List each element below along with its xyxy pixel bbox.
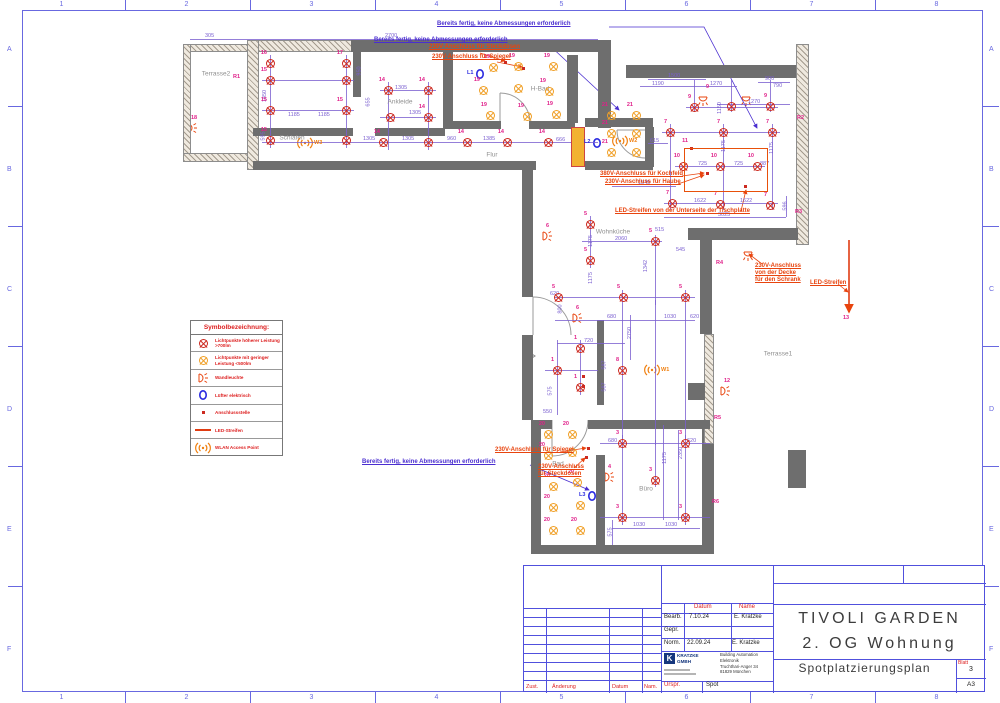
dim-label: 620 — [690, 314, 699, 320]
spot-number: 19 — [467, 77, 480, 83]
spot-light-high — [690, 103, 699, 112]
spot-light-high — [553, 366, 562, 375]
wall-segment — [183, 44, 255, 52]
spot-number: 7 — [756, 119, 769, 125]
wandleuchte-label: 6 — [546, 223, 549, 229]
title-block-line — [773, 583, 986, 584]
frame-tick — [625, 0, 626, 10]
title-block-line — [661, 638, 773, 639]
dim-label: 1030 — [664, 314, 676, 320]
frame-tick — [983, 106, 999, 107]
wall-segment — [588, 420, 602, 429]
spot-light-low — [486, 111, 495, 120]
grid-row-label: E — [7, 526, 12, 533]
dim-line — [262, 110, 354, 111]
wifi-label: W2 — [629, 138, 637, 144]
spot-number: 15 — [330, 97, 343, 103]
frame-tick — [8, 106, 22, 107]
wall-segment — [183, 44, 191, 162]
grid-col-label: 2 — [185, 694, 189, 701]
spot-number: 1 — [564, 374, 577, 380]
title-block-line — [524, 653, 661, 654]
grid-row-label: B — [989, 166, 994, 173]
spot-number: 14 — [412, 77, 425, 83]
spot-light-high — [424, 86, 433, 95]
spot-number: 1 — [541, 357, 554, 363]
annotation-line: 380V-Anschluss für Kochfeld — [600, 171, 683, 178]
luefter-icon — [191, 387, 215, 403]
company-address: Building Automation Elektronik Truchthar… — [720, 652, 758, 675]
spot-number: 3 — [606, 430, 619, 436]
dim-line — [600, 517, 710, 518]
spot-number: 3 — [639, 467, 652, 473]
footer-datum: Datum — [612, 684, 628, 690]
dim-label: 680 — [607, 314, 616, 320]
company-logo-icon: K — [664, 653, 675, 664]
dim-label: 575 — [608, 527, 614, 536]
title-block-line — [702, 681, 703, 693]
room-label: Flur — [486, 152, 497, 159]
spot-light-high — [424, 138, 433, 147]
grid-col-label: 8 — [935, 694, 939, 701]
annotation: 230V-Anschluss für Spiegel — [432, 54, 511, 61]
blatt-number: 3 — [956, 666, 986, 673]
dim-line — [555, 320, 695, 321]
annotation-line: 230V-Anschluss für Steckdosen — [429, 44, 520, 51]
row-label-gepr: Gepr. — [664, 627, 679, 633]
room-label: Wohnküche — [596, 229, 630, 236]
legend-row: WLAN Access Point — [191, 439, 282, 456]
spot-number: 8 — [606, 357, 619, 363]
logo-fine-print-line — [664, 669, 690, 671]
wall-segment — [522, 335, 533, 420]
dim-label: 1175 — [769, 142, 775, 154]
frame-tick — [125, 0, 126, 10]
room-label: Ankleide — [388, 99, 413, 106]
dim-line — [670, 124, 671, 210]
wandleuchte-icon — [699, 97, 708, 106]
spot-light-high — [586, 256, 595, 265]
frame-tick — [983, 586, 999, 587]
footer-nam: Nam. — [644, 684, 657, 690]
dim-label: 550 — [543, 409, 552, 415]
wall-segment — [531, 545, 714, 554]
spot-number: 21 — [595, 102, 608, 108]
spot-light-high — [666, 128, 675, 137]
dim-label: 596 — [783, 201, 789, 210]
wandleuchte-icon — [199, 373, 208, 382]
spot-number: 15 — [254, 67, 267, 73]
title-block-line — [773, 604, 986, 605]
frame-tick — [125, 692, 126, 703]
title-block-line — [609, 608, 610, 693]
dim-label: 587 — [602, 382, 608, 391]
spot-light-low — [489, 63, 498, 72]
urspr-label: Urspr. — [664, 682, 680, 688]
title-block-line — [524, 644, 661, 645]
spot-light-high — [618, 513, 627, 522]
legend-row: Anschlussstelle — [191, 405, 282, 422]
wlan-access-point-icon — [613, 136, 628, 146]
spot-number: 19 — [537, 53, 550, 59]
norm-datum: 22.09.24 — [687, 640, 710, 646]
spot-number: 5 — [574, 211, 587, 217]
wall-segment — [443, 121, 501, 129]
spot-light-high — [554, 293, 563, 302]
frame-tick — [750, 692, 751, 703]
dim-label: 1305 — [402, 136, 414, 142]
spot-light-high — [681, 293, 690, 302]
grid-col-label: 7 — [810, 1, 814, 8]
spot-light-low — [549, 482, 558, 491]
legend-row: Lichtpunkte höherer Leistung >700lm — [191, 335, 282, 352]
grid-row-label: B — [7, 166, 12, 173]
spot-light-high — [266, 106, 275, 115]
spot-light-low — [576, 501, 585, 510]
spot-light-high — [618, 366, 627, 375]
spot-light-high — [651, 476, 660, 485]
grid-row-label: F — [7, 646, 11, 653]
annotation: LED-Streifen — [810, 280, 846, 287]
dim-label: 1190 — [652, 81, 664, 87]
spot-light-high — [342, 136, 351, 145]
grid-col-label: 3 — [310, 1, 314, 8]
spot-number: 20 — [564, 517, 577, 523]
spot-number: 19 — [474, 102, 487, 108]
frame-tick — [8, 586, 22, 587]
dim-label: 2060 — [615, 236, 627, 242]
grid-col-label: 8 — [935, 1, 939, 8]
anschluss-number: 11 — [675, 138, 688, 144]
title-block-line — [524, 626, 661, 627]
spot-light-low — [549, 526, 558, 535]
grid-col-label: 1 — [60, 1, 64, 8]
luefter-icon — [589, 492, 595, 500]
spot-light-low — [545, 87, 554, 96]
spot-number: 20 — [537, 494, 550, 500]
wandleuchte-label: 4 — [608, 464, 611, 470]
grid-row-label: C — [7, 286, 12, 293]
legend-row: Lüfter elektrisch — [191, 387, 282, 404]
wifi-label: W3 — [314, 140, 322, 146]
wandleuchte-icon — [543, 232, 552, 241]
company-logo-sub: GMBH — [677, 659, 691, 664]
wall-segment — [253, 161, 536, 170]
dim-label: 1270 — [748, 99, 760, 105]
wifi-label: W1 — [661, 367, 669, 373]
dim-label: 1305 — [395, 85, 407, 91]
spot-number: 17 — [330, 50, 343, 56]
annotation-line: Bereits fertig, keine Abmessungen erford… — [362, 459, 495, 466]
project-title: TIVOLI GARDEN 2. OG Wohnung — [773, 606, 986, 656]
dim-label: 1185 — [318, 112, 330, 118]
grid-col-label: 4 — [435, 694, 439, 701]
dim-label: 1342 — [643, 260, 649, 272]
frame-tick — [500, 692, 501, 703]
dim-label: 1270 — [710, 81, 722, 87]
dim-label: 680 — [608, 438, 617, 444]
dim-label: 575 — [548, 386, 554, 395]
ref-label: 13 — [843, 315, 849, 321]
frame-tick — [625, 692, 626, 703]
annotation-line: 230V-Anschluss für Spiegel — [495, 447, 574, 454]
frame-tick — [500, 0, 501, 10]
grid-row-label: D — [989, 406, 994, 413]
dim-label: 545 — [676, 247, 685, 253]
room-label: Terrasse2 — [202, 71, 231, 78]
spot-number: 10 — [667, 153, 680, 159]
annotation: 230V-Anschluss für Haube — [605, 179, 681, 186]
spot-number: 3 — [606, 504, 619, 510]
dim-label: 1175 — [588, 235, 594, 247]
logo-fine-print-line — [664, 673, 696, 675]
spot-number: 14 — [372, 77, 385, 83]
ref-label: R1 — [233, 74, 240, 80]
annotation-line: für Steckdosen — [538, 471, 584, 478]
ref-label: R4 — [716, 260, 723, 266]
spot-light-high — [766, 102, 775, 111]
title-block-line — [524, 617, 661, 618]
dim-line — [622, 435, 623, 525]
spot-number: 5 — [574, 247, 587, 253]
dim-label: 1305 — [409, 110, 421, 116]
dim-label: 1622 — [694, 198, 706, 204]
wall-segment — [788, 450, 806, 488]
annotation-line: LED-Streifen — [810, 280, 846, 287]
spot-light-high — [576, 344, 585, 353]
spot-light-high — [384, 86, 393, 95]
footer-zust: Zust. — [526, 684, 538, 690]
frame-tick — [983, 226, 999, 227]
spot-light-high — [266, 136, 275, 145]
room-label: Terrasse1 — [764, 351, 793, 358]
anschluss-dot — [587, 447, 590, 450]
spot-number: 9 — [678, 94, 691, 100]
door-arc — [617, 130, 645, 158]
spot-number: 5 — [607, 284, 620, 290]
spot-light-high — [768, 128, 777, 137]
legend-label: Lichtpunkte höherer Leistung >700lm — [215, 338, 282, 348]
dim-line — [262, 80, 354, 81]
bearb-datum: 7.10.24 — [689, 614, 709, 620]
spot-number: 20 — [556, 421, 569, 427]
spot-number: 20 — [537, 517, 550, 523]
spot-light-high — [503, 138, 512, 147]
legend-label: Anschlussstelle — [215, 410, 282, 415]
row-label-norm: Norm. — [664, 640, 680, 646]
annotation-line: LED-Streifen von der Unterseite der Tisc… — [615, 208, 750, 215]
wlan-access-point-icon — [196, 443, 211, 453]
spot-number: 3 — [669, 430, 682, 436]
spot-light-high — [586, 220, 595, 229]
wandleuchte-icon — [191, 370, 215, 386]
spot-number: 7 — [707, 119, 720, 125]
spot-number: 14 — [491, 129, 504, 135]
annotation-line: Bereits fertig, keine Abmessungen erford… — [437, 21, 570, 28]
dim-label: 800 — [558, 304, 564, 313]
grid-row-label: F — [989, 646, 993, 653]
title-block-line — [642, 608, 643, 693]
spot-light-high — [727, 102, 736, 111]
grid-row-label: E — [989, 526, 994, 533]
dim-label: 515 — [655, 227, 664, 233]
annotation: 230V-Anschluss für Spiegel — [495, 447, 574, 454]
legend-row: Wandleuchte — [191, 370, 282, 387]
spot-number: 21 — [595, 139, 608, 145]
dim-line — [663, 425, 664, 520]
wall-segment — [522, 170, 533, 297]
project-line2: 2. OG Wohnung — [773, 631, 986, 656]
dim-label: 1305 — [363, 136, 375, 142]
title-block: TIVOLI GARDEN 2. OG Wohnung Spotplatzier… — [523, 565, 985, 692]
power-panel — [571, 127, 585, 167]
dim-label: 615 — [650, 138, 659, 144]
spot-light-high — [424, 113, 433, 122]
title-block-line — [903, 566, 904, 583]
room-label: Schlafen — [279, 135, 304, 142]
wandleuchte-icon — [721, 387, 730, 396]
spot-number: 15 — [254, 127, 267, 133]
wall-segment — [688, 383, 705, 400]
column-header-name: Name — [739, 604, 755, 610]
wall-segment — [688, 228, 798, 240]
title-block-line — [956, 678, 986, 679]
spot-light-high — [651, 237, 660, 246]
frame-tick — [8, 226, 22, 227]
spot-light-high — [386, 113, 395, 122]
spot-number: 3 — [669, 504, 682, 510]
footer-aenderung: Änderung — [552, 684, 576, 690]
symbol-legend: Symbolbezeichnung: Lichtpunkte höherer L… — [190, 320, 283, 456]
spot-light-low — [549, 62, 558, 71]
title-block-line — [546, 608, 547, 693]
anschluss-dot — [582, 385, 585, 388]
dim-label: 1175 — [662, 452, 668, 464]
legend-row: Lichtpunkte mit geringer Leistung <500lm — [191, 352, 282, 369]
dim-label: 790 — [773, 83, 782, 89]
annotation: 230V-Anschlussvon der Deckefür den Schra… — [755, 263, 801, 284]
spot-number: 14 — [532, 129, 545, 135]
wall-segment — [247, 40, 259, 170]
annotation: 380V-Anschluss für Kochfeld — [600, 171, 683, 178]
annotation-line: 230V-Anschluss für Spiegel — [432, 54, 511, 61]
wandleuchte-icon — [573, 314, 582, 323]
dim-line — [685, 290, 686, 440]
document-title: Spotplatzierungsplan — [773, 661, 956, 675]
frame-tick — [250, 692, 251, 703]
grid-col-label: 6 — [685, 1, 689, 8]
dim-label: 1500 — [668, 73, 680, 79]
luefter-label: L3 — [579, 492, 585, 498]
title-block-line — [661, 603, 773, 604]
legend-title: Symbolbezeichnung: — [191, 321, 282, 335]
dim-label: 1150 — [717, 102, 723, 114]
dim-line — [612, 186, 676, 187]
title-block-line — [773, 659, 986, 660]
luefter-label: L2 — [584, 139, 590, 145]
urspr-value: Spot — [706, 682, 718, 688]
project-line1: TIVOLI GARDEN — [773, 606, 986, 631]
annotation: Bereits fertig, keine Abmessungen erford… — [437, 21, 570, 28]
grid-col-label: 1 — [60, 694, 64, 701]
column-header-datum: Datum — [694, 604, 712, 610]
spot-number: 7 — [654, 119, 667, 125]
dim-line — [270, 55, 271, 148]
spot-number: 5 — [542, 284, 555, 290]
annotation-line: für den Schrank — [755, 277, 801, 284]
wall-segment — [596, 455, 605, 547]
title-block-line — [524, 662, 661, 663]
spot-number: 19 — [533, 78, 546, 84]
spot-light-low — [607, 148, 616, 157]
spot-light-low — [523, 112, 532, 121]
wall-segment — [700, 240, 712, 334]
spot-number: 19 — [540, 101, 553, 107]
grid-row-label: D — [7, 406, 12, 413]
table-led-outline — [684, 148, 768, 192]
spot-light-high — [719, 128, 728, 137]
legend-label: LED-Streifen — [215, 428, 282, 433]
dim-line — [648, 79, 706, 80]
wall-segment — [375, 128, 445, 136]
annotation-line: von der Decke — [755, 270, 801, 277]
dim-label: 2350 — [678, 447, 684, 459]
dim-label: 2750 — [627, 327, 633, 339]
wandleuchte-icon — [744, 252, 753, 261]
bearb-name: E. Kratzke — [734, 614, 762, 620]
wlan-access-point-icon — [645, 365, 660, 375]
annotation: LED-Streifen von der Unterseite der Tisc… — [615, 208, 750, 215]
spot-light-high — [266, 76, 275, 85]
title-block-line — [684, 603, 685, 651]
wandleuchte-label: 6 — [576, 305, 579, 311]
title-block-line — [524, 635, 661, 636]
spot-light-high — [463, 138, 472, 147]
annotation: 230V-Anschlussfür Steckdosen — [538, 464, 584, 478]
legend-row: LED-Streifen — [191, 422, 282, 439]
legend-label: Lüfter elektrisch — [215, 393, 282, 398]
spot-number: 7 — [656, 190, 669, 196]
spot-light-high — [342, 59, 351, 68]
frame-tick — [983, 466, 999, 467]
wandleuchte-icon — [605, 473, 614, 482]
spot-number: 15 — [254, 97, 267, 103]
legend-label: Lichtpunkte mit geringer Leistung <500lm — [215, 355, 282, 365]
wandleuchte-label: 9 — [706, 84, 709, 90]
dim-line — [557, 340, 558, 415]
grid-col-label: 3 — [310, 694, 314, 701]
spot-light-high — [544, 138, 553, 147]
frame-tick — [875, 692, 876, 703]
dim-line — [685, 435, 686, 525]
spot-light-low — [573, 478, 582, 487]
title-block-line — [524, 680, 661, 681]
spot-light-low — [632, 148, 641, 157]
spot-number: 16 — [254, 50, 267, 56]
spot-light-low — [544, 430, 553, 439]
wall-segment — [531, 420, 541, 547]
grid-row-label: C — [989, 286, 994, 293]
title-block-line — [524, 608, 661, 609]
wandleuchte-label: 18 — [191, 115, 197, 121]
wall-segment — [183, 153, 256, 162]
ref-label: R3 — [795, 209, 802, 215]
frame-tick — [875, 0, 876, 10]
grid-col-label: 7 — [810, 694, 814, 701]
frame-tick — [750, 0, 751, 10]
row-label-bearb: Bearb. — [664, 614, 682, 620]
title-block-line — [524, 671, 661, 672]
